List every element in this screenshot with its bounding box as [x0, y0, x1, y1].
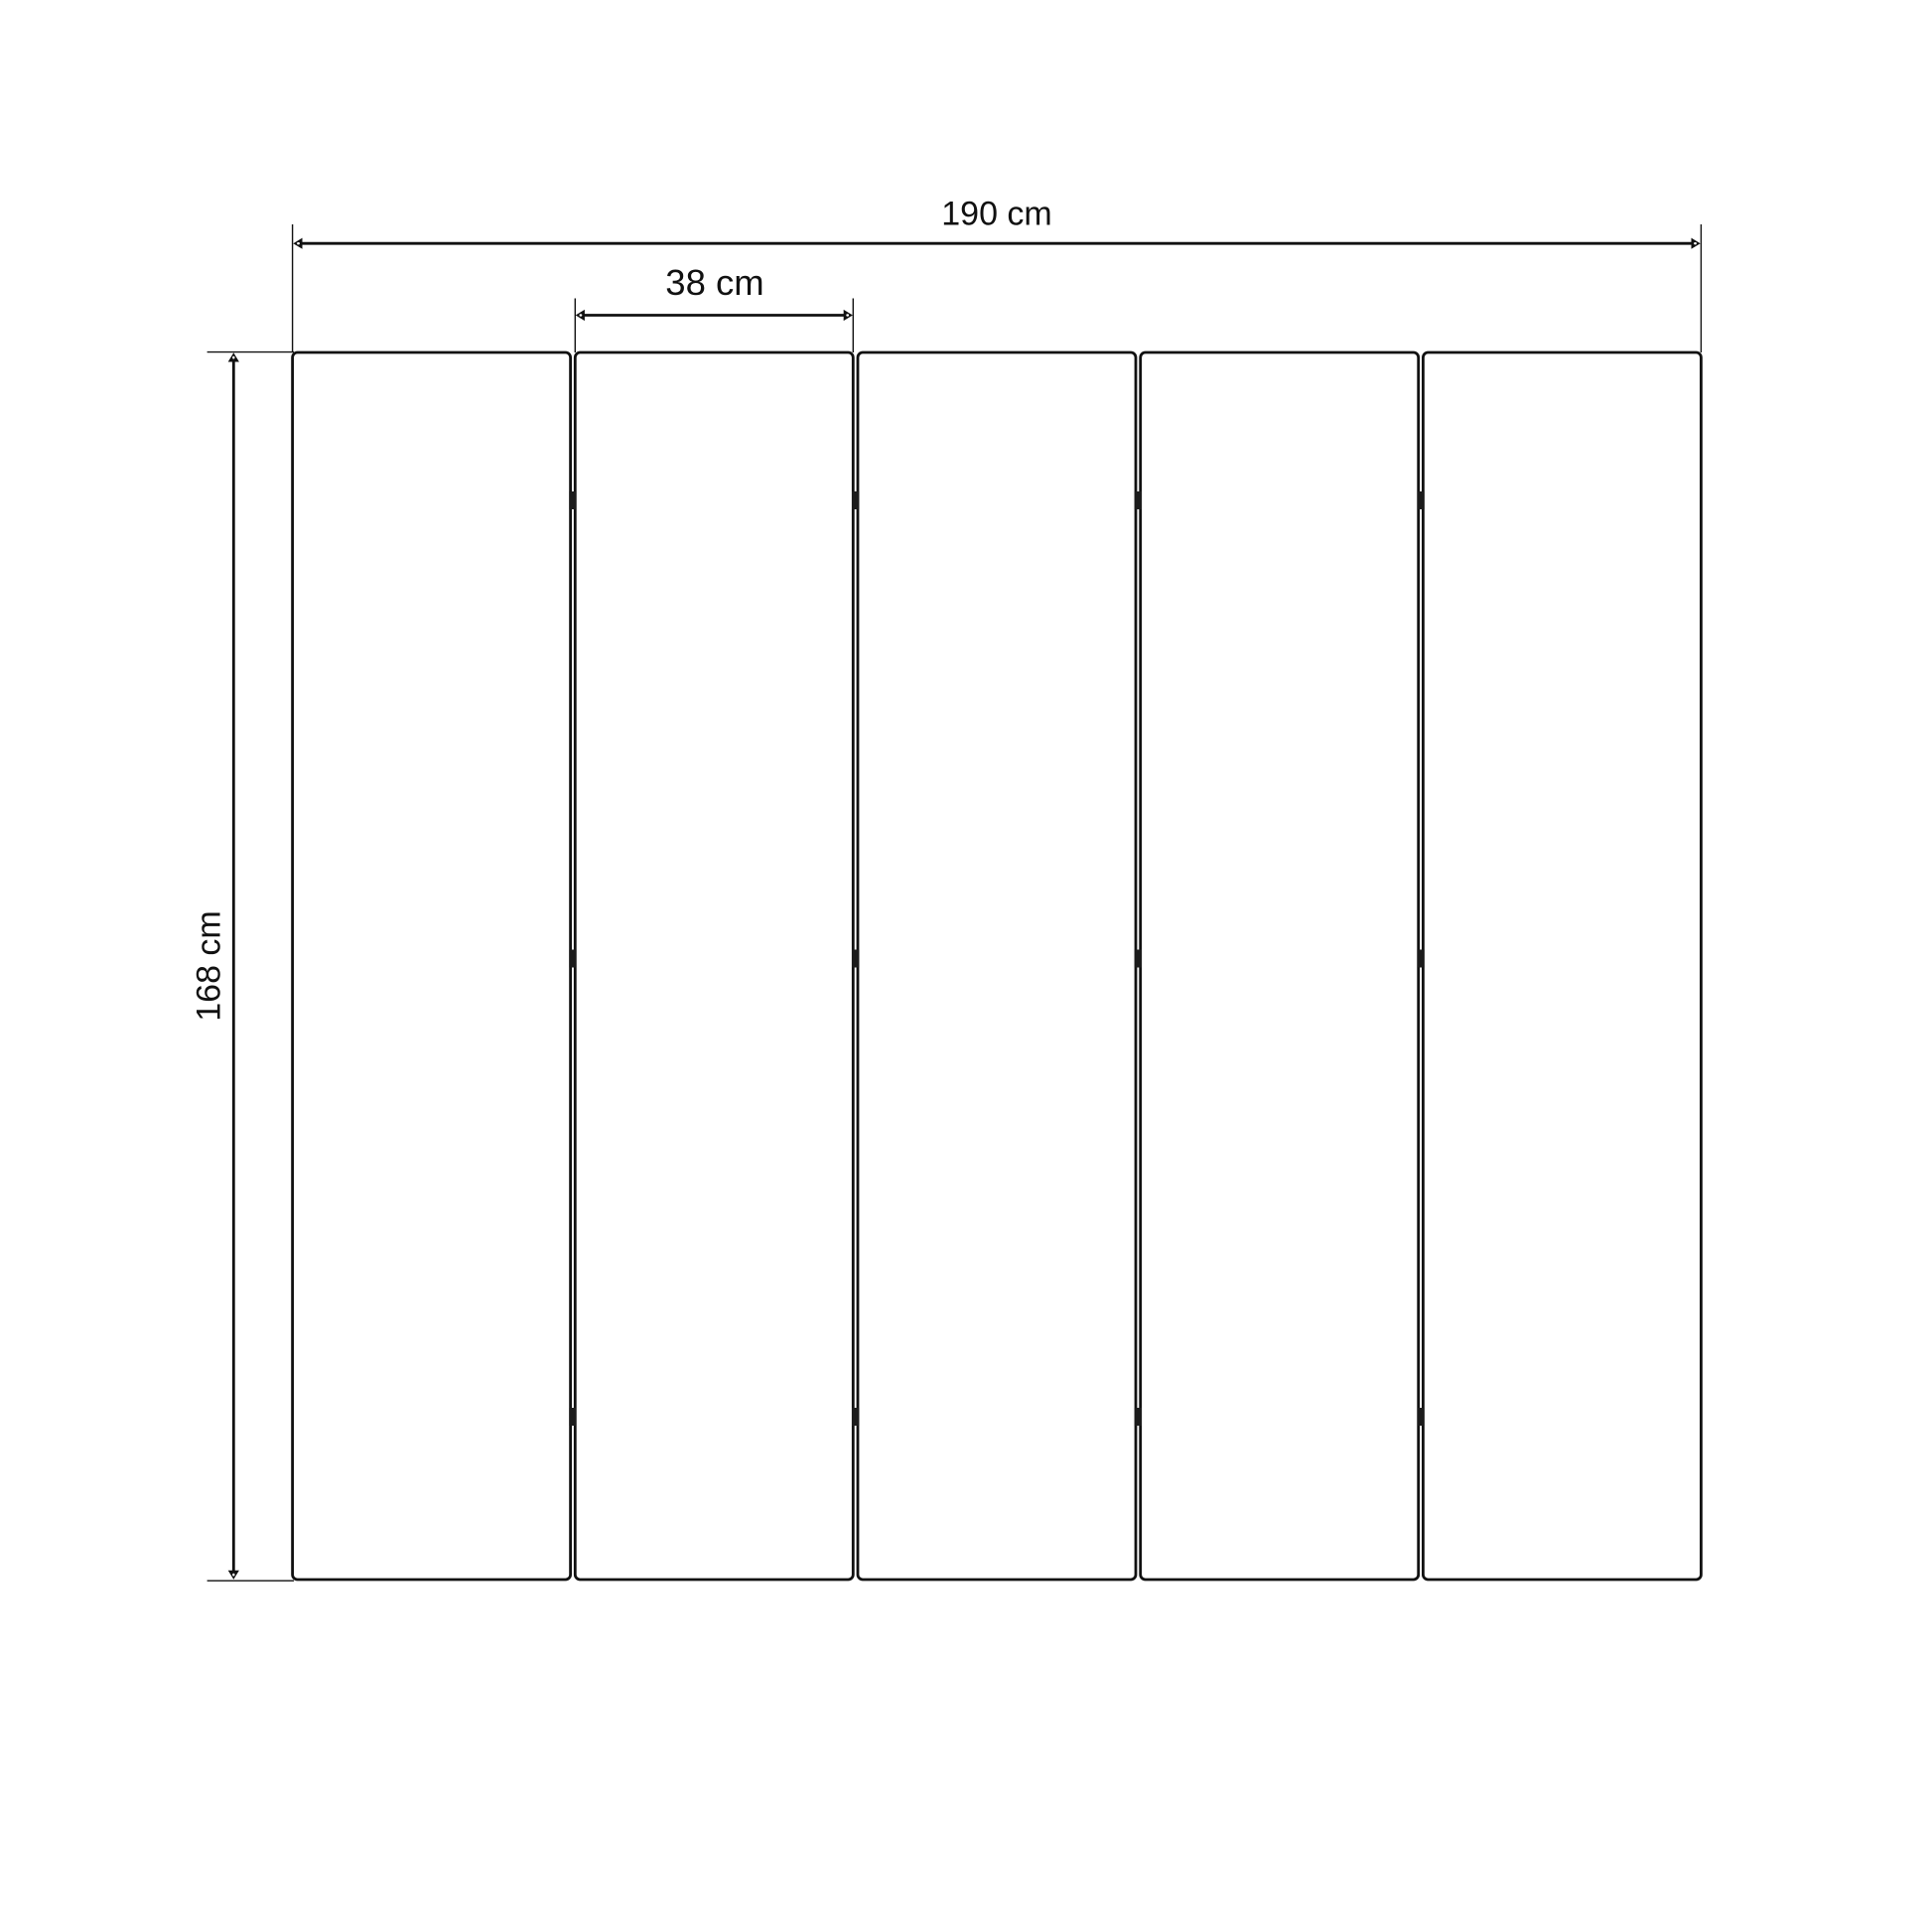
svg-text:168 cm: 168 cm	[190, 910, 227, 1022]
svg-text:38 cm: 38 cm	[665, 262, 763, 303]
svg-text:190 cm: 190 cm	[941, 196, 1052, 233]
